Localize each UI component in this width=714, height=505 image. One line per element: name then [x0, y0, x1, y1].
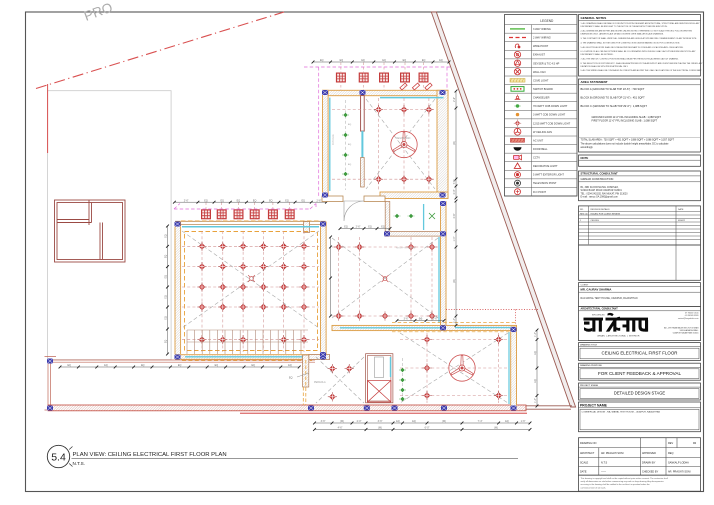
svg-text:1'-4": 1'-4"	[453, 236, 456, 241]
svg-text:5 WATT EXTERIOR LIGHT: 5 WATT EXTERIOR LIGHT	[533, 173, 564, 177]
svg-text:INFLUENCED: INFLUENCED	[592, 315, 605, 317]
svg-text:EQ: EQ	[422, 59, 426, 62]
svg-text:EQ: EQ	[412, 420, 416, 423]
svg-text:REQ: REQ	[668, 452, 673, 455]
svg-text:EQ: EQ	[67, 364, 71, 367]
svg-text:CEILING: CEILING	[591, 220, 600, 222]
svg-text:9. ALL THE WIRING SHALL BE CO: 9. ALL THE WIRING SHALL BE CONCEALED IN …	[581, 69, 703, 72]
svg-text:1'-4": 1'-4"	[453, 318, 456, 323]
svg-text:SUKLA ADARSH MALL: SUKLA ADARSH MALL	[680, 329, 699, 332]
svg-text:2'-6": 2'-6"	[453, 97, 456, 102]
svg-text:N.T.S: N.T.S	[601, 462, 607, 465]
svg-text:(M): (M)	[453, 141, 456, 145]
svg-text:2'-6": 2'-6"	[184, 199, 189, 202]
svg-text:REV: REV	[668, 442, 673, 445]
svg-text:contact@karyashala.co.in: contact@karyashala.co.in	[678, 317, 699, 320]
svg-text:EQ: EQ	[164, 234, 167, 238]
svg-text:1'-4": 1'-4"	[534, 332, 537, 337]
svg-text:5. ALL ELECTRICAL WORK SHALL: 5. ALL ELECTRICAL WORK SHALL BE DONE AS …	[581, 46, 684, 49]
svg-text:——: ——	[601, 471, 607, 474]
svg-text:EQ: EQ	[289, 377, 293, 380]
svg-text:CEILING ELECTRICAL FIRST FLOOR: CEILING ELECTRICAL FIRST FLOOR	[602, 351, 678, 356]
svg-text:DATE: DATE	[678, 208, 684, 211]
svg-text:CCTV: CCTV	[533, 156, 540, 160]
svg-text:3'-6": 3'-6"	[404, 318, 409, 321]
svg-text:EQ: EQ	[164, 295, 167, 299]
svg-text:STRUCTURAL CONSULTANT: STRUCTURAL CONSULTANT	[581, 172, 619, 176]
svg-text:7'-4": 7'-4"	[478, 420, 483, 423]
svg-text:DOOR BELL: DOOR BELL	[533, 147, 548, 151]
svg-text:E-mail : ramco.GA.1980@gmail.c: E-mail : ramco.GA.1980@gmail.com	[581, 196, 618, 199]
svg-text:MR. GAURAV SHARMA: MR. GAURAV SHARMA	[581, 288, 612, 292]
svg-text:EQ: EQ	[251, 364, 255, 367]
svg-text:GENERAL NOTES: GENERAL NOTES	[581, 16, 607, 20]
svg-text:EQ: EQ	[403, 59, 407, 62]
svg-text:PLAN VIEW: CEILING ELECTRICAL: PLAN VIEW: CEILING ELECTRICAL FIRST FLOO…	[73, 452, 227, 458]
svg-text:7/9 WATT COB DOWN LIGHT: 7/9 WATT COB DOWN LIGHT	[533, 104, 568, 108]
svg-text:SANKALP LODHA: SANKALP LODHA	[668, 462, 689, 465]
svg-text:ARCHITECT: ARCHITECT	[580, 452, 595, 455]
svg-text:7. ALL THE SWITCH / CONTROL P: 7. ALL THE SWITCH / CONTROL POSITIONS SH…	[581, 58, 679, 61]
svg-text:AC UNIT: AC UNIT	[533, 138, 544, 142]
svg-text:COMMERCIAL DESIGN - RAJ MAHAL: COMMERCIAL DESIGN - RAJ MAHAL TENT HOUSE…	[582, 411, 661, 414]
svg-text:ISSUED FOR CLIENT REVIEW: ISSUED FOR CLIENT REVIEW	[591, 213, 620, 215]
svg-text:3 WATT COB DOWN LIGHT: 3 WATT COB DOWN LIGHT	[533, 113, 566, 117]
svg-text:EQ: EQ	[164, 255, 167, 259]
svg-text:AR. PRAGATI SONI: AR. PRAGATI SONI	[601, 452, 624, 455]
svg-text:This drawing is copyright and: This drawing is copyright and shall not …	[581, 477, 669, 480]
svg-text:DRAWING TITLE: DRAWING TITLE	[580, 344, 598, 347]
svg-text:EQ: EQ	[361, 59, 365, 62]
svg-text:DISCREPANCY SHALL BE NOTIFIED.: DISCREPANCY SHALL BE NOTIFIED.	[581, 53, 614, 56]
svg-text:BLOCK B (GROUND TO SLAB TOP 21: BLOCK B (GROUND TO SLAB TOP 21'-6") : 45…	[581, 95, 646, 99]
svg-text:EQ: EQ	[237, 199, 241, 202]
svg-text:EQ: EQ	[164, 340, 167, 344]
svg-text:PERGOLA: PERGOLA	[314, 381, 326, 384]
svg-text:EQ: EQ	[288, 364, 292, 367]
svg-text:PROJECT STAGE: PROJECT STAGE	[580, 384, 599, 387]
svg-text:5.4: 5.4	[51, 451, 66, 463]
svg-text:APPROVED: APPROVED	[642, 452, 656, 455]
svg-text:DIMENSIONS ONLY. LARGER SCALE: DIMENSIONS ONLY. LARGER SCALE DETAILS GO…	[581, 33, 665, 36]
svg-text:6'-0": 6'-0"	[425, 427, 430, 430]
svg-text:EQ: EQ	[215, 364, 219, 367]
svg-text:CLIENT: CLIENT	[581, 285, 589, 287]
svg-text:DECORATIVE LIGHT: DECORATIVE LIGHT	[533, 164, 558, 168]
svg-text:GIRNAR CONSTRUCTION: GIRNAR CONSTRUCTION	[581, 177, 614, 181]
svg-text:TELEVISION POINT: TELEVISION POINT	[533, 181, 557, 185]
svg-text:3'-6": 3'-6"	[321, 420, 326, 423]
svg-text:CHECKED BY: CHECKED BY	[642, 471, 659, 474]
svg-text:2'-0": 2'-0"	[453, 189, 456, 194]
svg-text:WALL FAN: WALL FAN	[533, 70, 546, 74]
svg-text:(M): (M)	[340, 420, 344, 423]
svg-text:EQ: EQ	[344, 226, 348, 229]
svg-text:030622: 030622	[678, 220, 686, 222]
svg-text:EQ: EQ	[534, 379, 537, 383]
svg-text:PROJECT NAME: PROJECT NAME	[580, 404, 608, 408]
svg-text:SR.: SR.	[580, 209, 584, 211]
svg-text:6. LOCATION OF ALL CEILING FI: 6. LOCATION OF ALL CEILING FIXTURES SHAL…	[581, 50, 697, 53]
svg-text:R.O POINT: R.O POINT	[533, 190, 546, 194]
svg-text:2'-6": 2'-6"	[317, 199, 322, 202]
svg-text:AREA STATEMENT: AREA STATEMENT	[581, 80, 608, 84]
svg-text:4'-6": 4'-6"	[338, 427, 343, 430]
svg-text:1. ALL DRAWINGS SHALL BE READ: 1. ALL DRAWINGS SHALL BE READ IN CONJUNC…	[581, 22, 701, 25]
svg-text:3'-6": 3'-6"	[378, 420, 383, 423]
svg-text:DISCREPANCY SHALL BE BROUGHT T: DISCREPANCY SHALL BE BROUGHT TO THE NOTI…	[581, 25, 668, 28]
svg-text:verify all dimensions on site: verify all dimensions on site before com…	[581, 480, 664, 483]
svg-text:REV. 00: REV. 00	[580, 213, 588, 215]
svg-text:EQ: EQ	[505, 420, 509, 423]
svg-text:EQ: EQ	[301, 199, 305, 202]
svg-text:EQ: EQ	[348, 144, 351, 146]
svg-text:EQ: EQ	[381, 226, 385, 229]
svg-text:EQ: EQ	[368, 226, 372, 229]
svg-text:2'-0": 2'-0"	[357, 420, 362, 423]
svg-text:EXHAUST: EXHAUST	[533, 53, 545, 57]
svg-text:EQ: EQ	[396, 420, 400, 423]
svg-text:DRAWING PURPOSE: DRAWING PURPOSE	[580, 364, 602, 367]
svg-text:3. THE CONTRACTOR SHALL VERIF: 3. THE CONTRACTOR SHALL VERIFY ALL DIMEN…	[581, 37, 698, 40]
svg-text:occurring in the drawing shall: occurring in the drawing shall be notifi…	[581, 483, 651, 486]
svg-text:EQ: EQ	[220, 199, 224, 202]
svg-text:BLOCK A (GROUND TO SLAB TOP 10: BLOCK A (GROUND TO SLAB TOP 10'-6") : 73…	[581, 87, 645, 91]
svg-text:CEILING FAN: CEILING FAN	[396, 137, 411, 140]
svg-text:The above calculations does no: The above calculations does not include …	[581, 143, 670, 146]
svg-text:TEL : 0294-2410231 RAI MUKAT,: TEL : 0294-2410231 RAI MUKAT, PIN 313020	[581, 192, 629, 195]
svg-text:(M): (M)	[378, 427, 382, 430]
svg-text:REVISION DETAILS: REVISION DETAILS	[591, 208, 611, 211]
svg-text:RAJ MAHAL TENT HOUSE, UDAIPUR,: RAJ MAHAL TENT HOUSE, UDAIPUR, RAJASTHAN	[581, 297, 638, 300]
svg-text:W CEILING FAN: W CEILING FAN	[533, 130, 552, 134]
svg-text:commencement of site work.: commencement of site work.	[581, 486, 607, 489]
svg-text:DETAILED DESIGN STAGE: DETAILED DESIGN STAGE	[614, 391, 666, 396]
svg-text:FOR CLIENT FEEDBACK & APPROVAL: FOR CLIENT FEEDBACK & APPROVAL	[598, 371, 681, 376]
svg-text:2'-6": 2'-6"	[433, 318, 438, 321]
svg-text:DRAWING NO: DRAWING NO	[580, 442, 596, 445]
svg-text:EQ: EQ	[141, 364, 145, 367]
svg-text:2'-6": 2'-6"	[453, 213, 456, 218]
svg-text:AB - 299 HIRAN MAGRI SECTOR 3: AB - 299 HIRAN MAGRI SECTOR 3 NEAR	[664, 326, 699, 329]
svg-text:12/15 WATT COB DOWN LIGHT: 12/15 WATT COB DOWN LIGHT	[533, 121, 571, 125]
svg-text:2'-6": 2'-6"	[356, 226, 361, 229]
svg-text:AR. PRAGATI SONI: AR. PRAGATI SONI	[668, 471, 691, 474]
svg-text:2 WAY WIRING: 2 WAY WIRING	[533, 36, 551, 40]
svg-text:EQ: EQ	[269, 199, 273, 202]
svg-text:PASSAGE: PASSAGE	[332, 134, 335, 145]
svg-text:(M): (M)	[442, 420, 446, 423]
svg-text:accordingly.: accordingly.	[581, 146, 594, 149]
svg-text:SURAJ BAGH ROAD UDAIPUR 313001: SURAJ BAGH ROAD UDAIPUR 313001	[581, 189, 623, 192]
svg-text:(M): (M)	[419, 318, 423, 321]
svg-text:N.T.S.: N.T.S.	[73, 461, 86, 466]
svg-text:EQ: EQ	[348, 164, 351, 166]
svg-text:BLOCK C (GROUND TO SLAB TOP 29: BLOCK C (GROUND TO SLAB TOP 29'-6") : 1,…	[581, 104, 648, 108]
svg-text:(M): (M)	[453, 279, 456, 283]
svg-text:EQ: EQ	[285, 199, 289, 202]
svg-text:DATE: DATE	[580, 471, 587, 474]
svg-text:EQ: EQ	[382, 59, 386, 62]
svg-text:CHANDELIER: CHANDELIER	[533, 96, 550, 100]
svg-text:EQ: EQ	[320, 59, 324, 62]
svg-text:EQ: EQ	[348, 124, 351, 126]
svg-text:7'-6": 7'-6"	[453, 179, 456, 184]
svg-text:SWITCH BOARD: SWITCH BOARD	[533, 87, 553, 91]
svg-text:EQ: EQ	[104, 364, 108, 367]
svg-text:EQ: EQ	[164, 275, 167, 279]
svg-text:FIRST FLOOR 11'-0" FFL INCLUDI: FIRST FLOOR 11'-0" FFL INCLUDING SLAB : …	[592, 119, 658, 122]
svg-text:DEVIATION SHALL BE WITH PRIOR: DEVIATION SHALL BE WITH PRIOR APPROVAL O…	[581, 65, 629, 68]
svg-text:EQ: EQ	[340, 59, 344, 62]
svg-text:ARCHITECTURAL CONSULTANT: ARCHITECTURAL CONSULTANT	[581, 308, 619, 311]
svg-text:NOTE: NOTE	[581, 156, 589, 160]
svg-text:2. ALL DIMENSIONS ARE IN FEET: 2. ALL DIMENSIONS ARE IN FEET AND INCHES…	[581, 30, 693, 33]
svg-text:RECEPTION AREA: RECEPTION AREA	[396, 247, 416, 250]
svg-text:EQ: EQ	[204, 199, 208, 202]
svg-text:EQ: EQ	[439, 59, 443, 62]
svg-text:DRAWN BY: DRAWN BY	[642, 462, 656, 465]
svg-text:8. THE SELECTION OF FIXTURES: 8. THE SELECTION OF FIXTURES ETC. SHALL …	[581, 62, 704, 65]
svg-text:GEYSER & T/C 4.5 HP: GEYSER & T/C 4.5 HP	[533, 61, 560, 65]
svg-text:WIRE POINT: WIRE POINT	[533, 44, 549, 48]
svg-text:B1, 3RD FLOOR MAHAL COMPLEX,: B1, 3RD FLOOR MAHAL COMPLEX,	[581, 186, 620, 189]
svg-text:EQ: EQ	[164, 316, 167, 320]
svg-text:EQ: EQ	[178, 364, 182, 367]
svg-text:4. THE DRAWING SHALL NOT BE U: 4. THE DRAWING SHALL NOT BE USED FOR CON…	[581, 41, 681, 44]
svg-text:(M): (M)	[494, 427, 498, 430]
svg-text:LEGEND: LEGEND	[540, 19, 554, 23]
svg-text:UDAIPUR RAJASTHAN 313001: UDAIPUR RAJASTHAN 313001	[673, 332, 699, 335]
svg-text:EQ: EQ	[253, 199, 257, 202]
svg-text:EQ: EQ	[534, 351, 537, 355]
svg-text:COVE LIGHT: COVE LIGHT	[533, 78, 549, 82]
svg-text:3 WAY WIRING: 3 WAY WIRING	[533, 27, 551, 31]
svg-text:SCALE: SCALE	[580, 462, 589, 465]
svg-text:1'-6": 1'-6"	[521, 420, 526, 423]
svg-text:1'-4": 1'-4"	[534, 398, 537, 403]
svg-text:TOTAL SLAB AREA :: TOTAL SLAB AREA : 730 SQFT + 451 SQFT + …	[581, 139, 675, 142]
svg-text:URBAN | ARCHITECTURAL | IN: URBAN | ARCHITECTURAL | INTERIOR	[597, 335, 640, 338]
